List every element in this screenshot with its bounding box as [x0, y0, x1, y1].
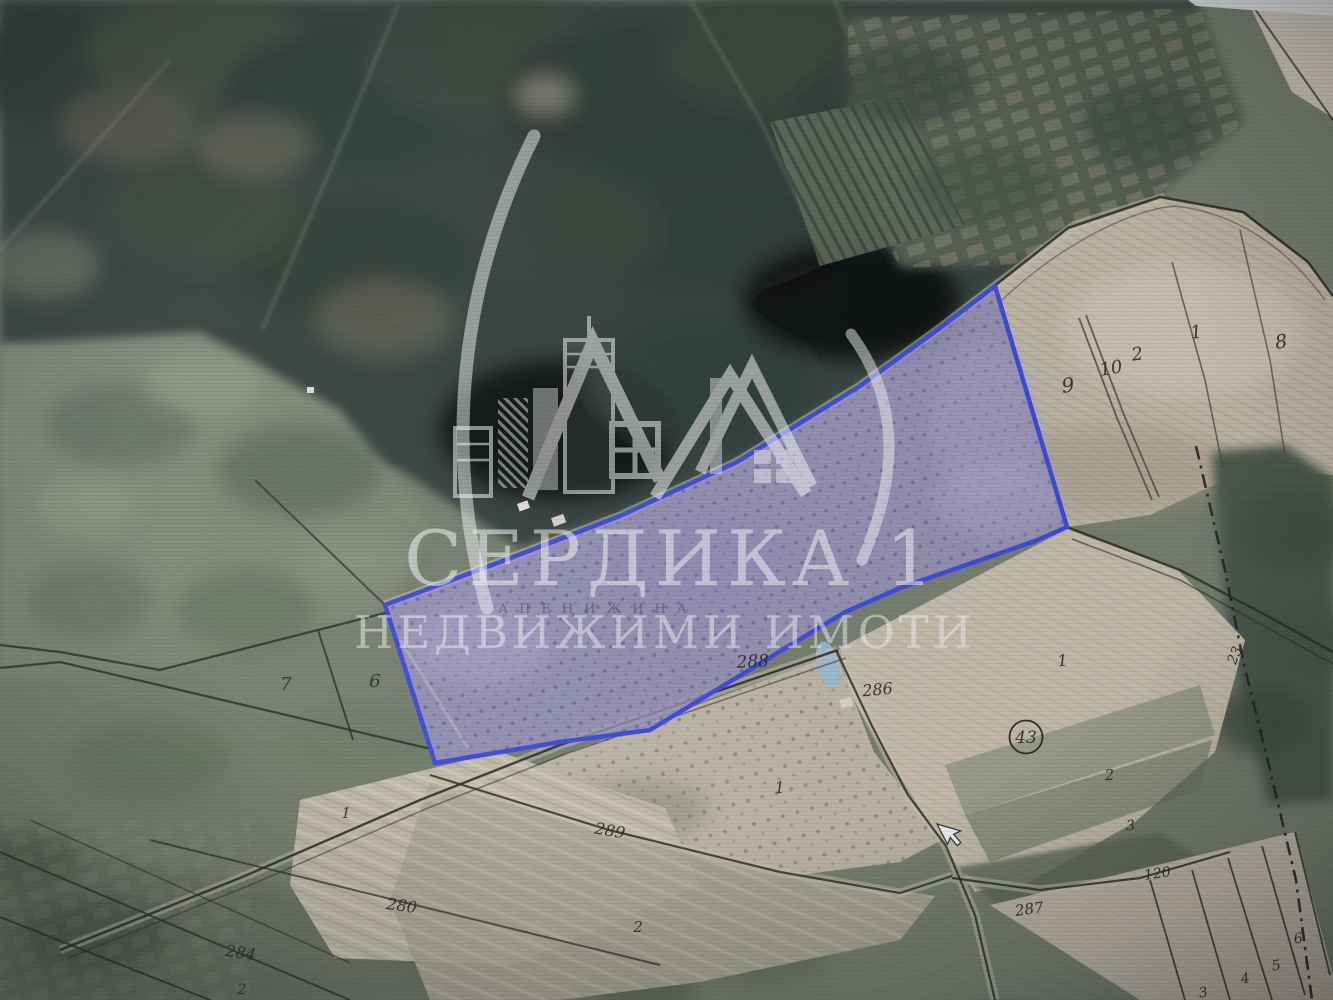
cadastral-map-photo[interactable]: 9 10 2 1 8 7 6 288 286 289 280 284 287 1… — [0, 0, 1333, 1000]
photo-grain — [0, 0, 1333, 1000]
map-canvas[interactable]: 9 10 2 1 8 7 6 288 286 289 280 284 287 1… — [0, 0, 1333, 1000]
